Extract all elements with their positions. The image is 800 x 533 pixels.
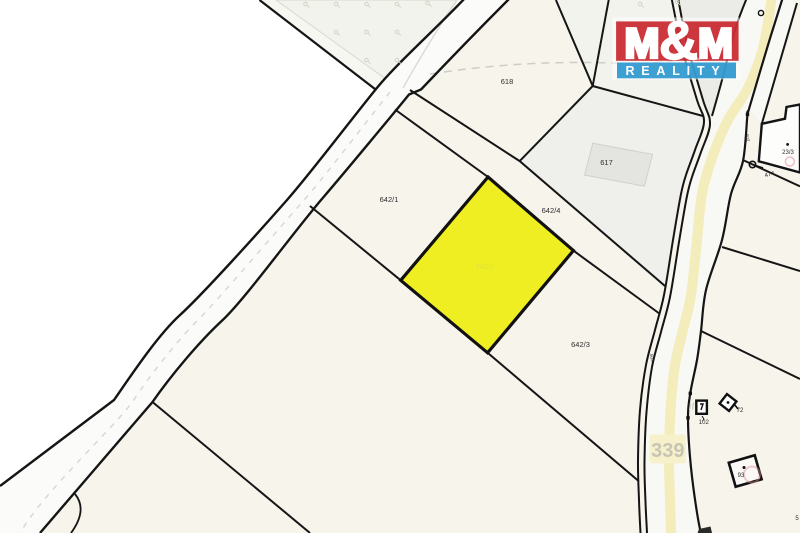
svg-text:642/4: 642/4 — [542, 206, 561, 215]
svg-text:REALITY: REALITY — [625, 64, 726, 78]
svg-text:642/2: 642/2 — [476, 262, 495, 271]
svg-text:M: M — [625, 20, 660, 67]
svg-text:M&M: M&M — [691, 56, 700, 61]
svg-text:642/3: 642/3 — [571, 340, 590, 349]
svg-text:618: 618 — [501, 77, 514, 86]
svg-text:&: & — [659, 11, 698, 71]
svg-text:339: 339 — [651, 440, 684, 462]
svg-text:642/1: 642/1 — [380, 195, 399, 204]
svg-text:102: 102 — [699, 420, 710, 426]
svg-text:617: 617 — [600, 158, 613, 167]
svg-text:72: 72 — [737, 408, 744, 414]
svg-text:93: 93 — [738, 473, 745, 479]
svg-text:M: M — [698, 20, 733, 67]
svg-text:23/3: 23/3 — [782, 150, 794, 156]
